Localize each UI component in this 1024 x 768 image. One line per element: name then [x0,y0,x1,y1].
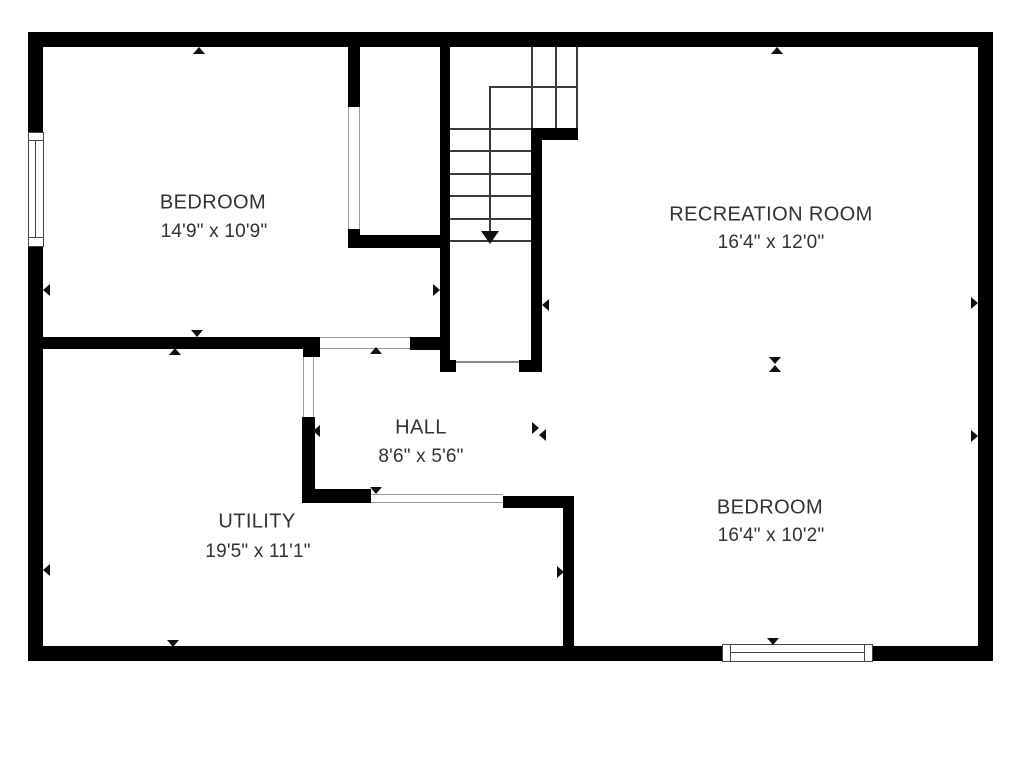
wall-hall-bottom-left [302,489,371,503]
window-bottom-cap-left [730,644,731,662]
marker-recreation-bottom [769,357,781,364]
stair-direction-line-horizontal [490,86,578,88]
marker-utility-right [557,566,564,578]
marker-bedroom2-bottom [767,638,779,645]
opening-hall-left-edge2 [313,357,314,417]
wall-outer-left-lower [28,247,43,661]
wall-stairwell-left [440,47,450,372]
stair-direction-arrow [481,231,499,244]
marker-utility-left [43,564,50,576]
wall-hall-bottom-right [503,496,574,508]
room-label-bedroom1: BEDROOM [160,192,266,215]
wall-outer-right [978,32,993,661]
opening-bedroom1-top-edge [320,337,410,338]
opening-hall-bottom-edge1 [371,494,503,495]
window-bottom-cap-right [864,644,865,662]
marker-bedroom1-bottom [191,330,203,337]
wall-bedroom2-left [563,508,574,647]
window-left [28,132,44,247]
wall-outer-bottom-left [28,646,722,661]
wall-stair-door-jamb-right [519,360,542,372]
stair-direction-line-vertical [489,86,491,232]
window-bottom [722,644,873,662]
window-left-cap-top [28,140,44,141]
wall-outer-bottom-right [873,646,993,661]
marker-hall-bottom [370,487,382,494]
wall-stair-door-jamb-left [440,360,456,372]
room-label-bedroom2: BEDROOM [717,497,823,520]
marker-utility-top [169,348,181,355]
room-dims-recreation: 16'4" x 12'0" [718,232,825,254]
room-dims-bedroom1: 14'9" x 10'9" [161,221,268,243]
wall-hall-top-stub [410,337,440,350]
marker-recreation-top [771,47,783,54]
wall-closet-bottom [348,235,440,248]
window-left-mullion [35,140,36,237]
marker-bedroom1-top [193,47,205,54]
room-dims-bedroom2: 16'4" x 10'2" [718,525,825,547]
marker-bedroom2-left [539,429,546,441]
marker-hall-left [313,425,320,437]
marker-bedroom1-left [43,284,50,296]
wall-bedroom1-bottom-tab [303,349,320,357]
wall-outer-left-upper [28,32,43,132]
wall-outer-top [28,32,993,47]
room-dims-utility: 19'5" x 11'1" [205,541,310,563]
opening-closet-right-edge [359,107,360,229]
marker-hall-top [370,347,382,354]
marker-utility-bottom [167,640,179,647]
marker-bedroom1-right [433,284,440,296]
opening-stair-doorway [456,361,519,363]
marker-recreation-right [971,297,978,309]
room-label-hall: HALL [395,417,447,440]
window-left-cap-bottom [28,237,44,238]
opening-closet-left-edge [348,107,349,229]
wall-closet-stub [348,47,360,107]
opening-hall-bottom-edge2 [371,502,503,503]
room-dims-hall: 8'6" x 5'6" [378,446,463,468]
marker-bedroom2-right [971,430,978,442]
floor-plan: BEDROOM 14'9" x 10'9" RECREATION ROOM 16… [0,0,1024,768]
marker-hall-right [532,422,539,434]
marker-recreation-left [542,299,549,311]
wall-stairwell-right [531,128,542,372]
room-label-utility: UTILITY [218,511,295,534]
opening-hall-left-edge1 [303,357,304,417]
window-bottom-mullion [730,652,865,653]
marker-bedroom2-top [769,365,781,372]
opening-bedroom1-bottom-edge [320,348,410,349]
room-label-recreation: RECREATION ROOM [669,204,872,227]
wall-bedroom1-bottom [43,337,320,349]
